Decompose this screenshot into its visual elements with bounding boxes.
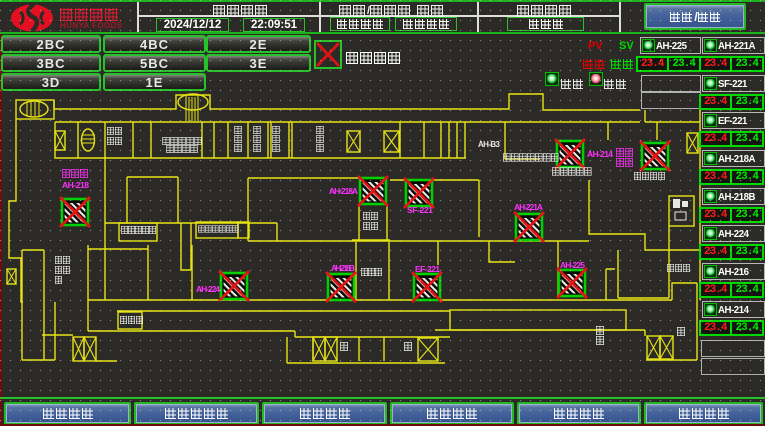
- svg-text:AH-224: AH-224: [196, 284, 220, 294]
- svg-text:AH-B3: AH-B3: [478, 140, 501, 149]
- svg-text:AH-218B: AH-218B: [331, 263, 355, 273]
- svg-text:EF-221: EF-221: [415, 264, 440, 274]
- svg-text:AH-218: AH-218: [62, 180, 89, 190]
- svg-text:AH-221A: AH-221A: [514, 202, 543, 212]
- svg-text:AH-225: AH-225: [560, 260, 585, 270]
- svg-text:AH-214: AH-214: [587, 149, 613, 159]
- svg-text:AH-218A: AH-218A: [329, 186, 358, 196]
- svg-text:SF-221: SF-221: [407, 205, 433, 215]
